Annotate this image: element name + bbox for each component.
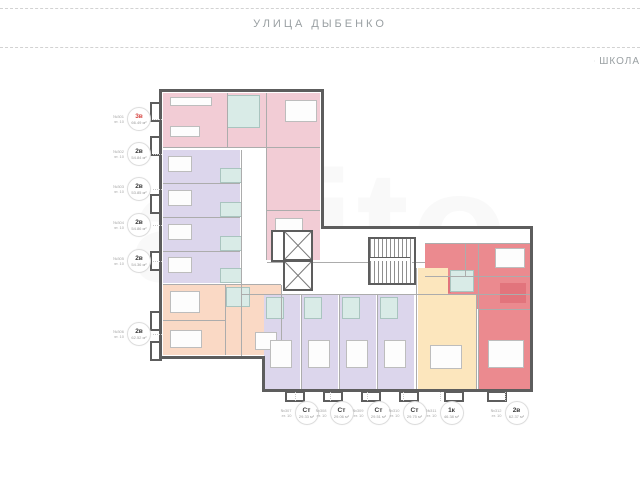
apartment-meta: №306эт. 10 [104,329,124,339]
apartment-badge[interactable]: 2в54.84 м² [127,142,151,166]
apartment-badge[interactable]: 2в62.37 м² [505,401,529,425]
apartment-meta: №311эт. 10 [417,408,437,418]
outer-wall [321,89,324,229]
bathroom-pod [220,168,242,183]
bathroom-pod [304,297,322,319]
wall [163,320,225,321]
street-label: УЛИЦА ДЫБЕНКО [0,18,640,30]
furniture-bed [346,340,368,368]
furniture-bed [170,330,202,348]
bathroom-pod [220,202,242,217]
bathroom-pod [450,270,474,292]
furniture-bed [168,257,192,273]
apartment-label: №306эт. 10 2в62.52 м² [104,322,162,346]
bathroom-pod [226,287,250,307]
apartment-meta: №303эт. 10 [104,184,124,194]
staircase [368,237,416,285]
outer-wall [262,356,265,392]
red-apartment-bathroom2 [500,283,526,303]
apartment-label: №305эт. 10 2в54.36 м² [104,249,162,273]
bathroom-pod [227,95,260,128]
wall [266,93,267,260]
wall [267,210,320,211]
apartment-label: №302эт. 10 2в54.84 м² [104,142,162,166]
service-shaft [271,230,285,262]
book-icon [594,55,595,67]
furniture-sofa [170,126,200,137]
wall [163,284,281,285]
wall [225,285,226,355]
furniture-counter [170,97,212,106]
furniture-bed [488,340,524,368]
top-dashed-line [0,8,640,9]
wall [339,295,340,390]
staircase-landing [370,257,410,261]
wall [163,217,240,218]
furniture-bed [168,190,192,206]
leader-line [153,334,162,335]
apartment-meta: №301эт. 10 [104,114,124,124]
wall [301,295,302,390]
apartment-meta: №309эт. 10 [344,408,364,418]
apartment-meta: №304эт. 10 [104,220,124,230]
second-dashed-line [0,47,640,48]
wall [416,268,417,390]
furniture-bed [495,248,525,268]
wall [163,183,240,184]
wall [163,147,320,148]
wall [241,150,242,356]
bathroom-pod [380,297,398,319]
leader-line [153,189,162,190]
school-label: ШКОЛА [599,56,640,67]
apartment-1k-yellow[interactable] [418,295,476,390]
apartment-label: №304эт. 10 2в54.86 м² [104,213,162,237]
apartment-meta: №308эт. 10 [307,408,327,418]
apartment-meta: №305эт. 10 [104,256,124,266]
bathroom-pod [220,268,242,283]
apartment-badge[interactable]: 2в53.85 м² [127,177,151,201]
wall [163,251,240,252]
wall [227,93,228,147]
bathroom-pod [342,297,360,319]
furniture-bed [168,156,192,172]
wall [478,243,479,390]
wall [241,294,531,295]
outer-wall [159,89,324,92]
apartment-meta: №310эт. 10 [380,408,400,418]
outer-wall [530,226,533,392]
wall [476,295,477,390]
furniture-bed [384,340,406,368]
apartment-badge[interactable]: 2в62.52 м² [127,322,151,346]
wall [465,243,466,276]
furniture-bed [170,291,200,313]
apartment-label: №303эт. 10 2в53.85 м² [104,177,162,201]
apartment-meta: №307эт. 10 [272,408,292,418]
furniture-bed [270,340,292,368]
furniture-bed [168,224,192,240]
bathroom-pod [220,236,242,251]
wall [377,295,378,390]
wall [478,309,530,310]
leader-line [505,392,506,401]
apartment-badge[interactable]: 1к46.38 м² [440,401,464,425]
apartment-badge[interactable]: 2в54.36 м² [127,249,151,273]
apartment-1k-yellow-hall[interactable] [418,268,448,295]
furniture-bed [430,345,462,369]
leader-line [153,154,162,155]
apartment-badge[interactable]: 2в54.86 м² [127,213,151,237]
apartment-badge[interactable]: 3в66.49 м² [127,107,151,131]
furniture-bed [285,100,317,122]
apartment-label: №301эт. 10 3в66.49 м² [104,107,162,131]
outer-wall [159,356,265,359]
leader-line [153,119,162,120]
apartment-meta: №302эт. 10 [104,149,124,159]
elevator-shafts [283,230,313,292]
leader-line [153,261,162,262]
outer-wall [322,226,533,229]
leader-line [153,225,162,226]
school-marker: ШКОЛА [594,53,640,69]
leader-line [440,392,441,401]
apartment-label: №312эт. 10 2в62.37 м² [465,392,545,425]
apartment-meta: №312эт. 10 [482,408,502,418]
furniture-bed [308,340,330,368]
